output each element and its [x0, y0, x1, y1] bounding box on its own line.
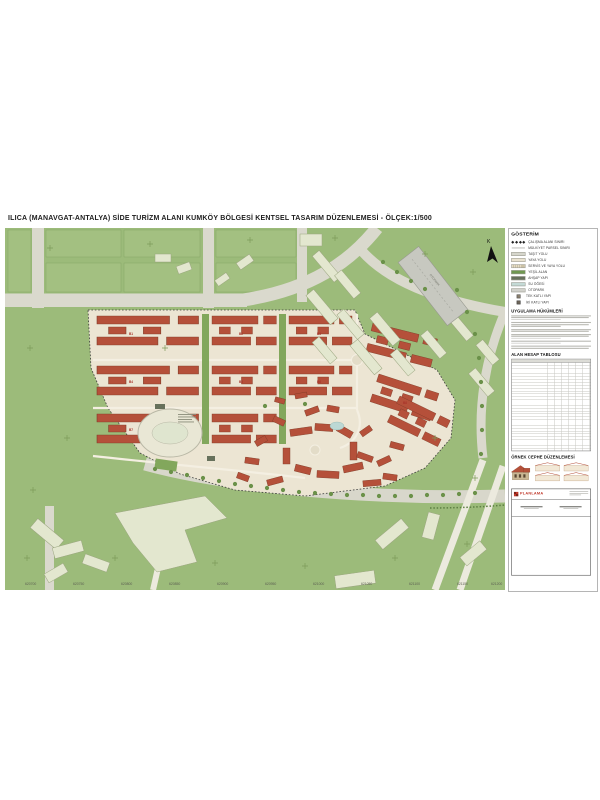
one-story-marker: [517, 294, 521, 298]
wood-swatch: [511, 276, 525, 280]
svg-text:B8: B8: [403, 401, 407, 405]
signatory-left: [512, 499, 551, 516]
green-swatch: [511, 270, 525, 274]
stadium: [138, 409, 202, 457]
svg-text:620700: 620700: [25, 582, 36, 586]
facade-examples: [511, 461, 591, 486]
signatory-row: [512, 499, 591, 516]
svg-text:B6: B6: [317, 380, 321, 384]
firm-name: PLANLAMA: [520, 492, 543, 496]
firm-address-lines: [570, 491, 589, 496]
svg-text:B4: B4: [129, 380, 133, 384]
svg-text:620750: 620750: [73, 582, 84, 586]
svg-text:B2: B2: [239, 332, 243, 336]
service-road-swatch: [511, 264, 525, 268]
provisions-heading: UYGULAMA HÜKÜMLERİ: [511, 309, 591, 314]
svg-text:621100: 621100: [409, 582, 420, 586]
area-calculation-table: [511, 359, 591, 451]
svg-text:B3: B3: [317, 332, 321, 336]
svg-text:621150: 621150: [457, 582, 468, 586]
parking-swatch: [511, 288, 525, 292]
title-block: PLANLAMA: [511, 488, 591, 575]
provisions-text: [511, 315, 591, 348]
firm-logo-icon: [514, 492, 518, 496]
two-story-marker: [517, 301, 521, 305]
svg-text:621200: 621200: [491, 582, 502, 586]
firm-logo-row: PLANLAMA: [512, 489, 591, 499]
village-plaza: [310, 445, 320, 455]
path-swatch: [511, 258, 525, 262]
svg-text:621050: 621050: [361, 582, 372, 586]
boundary-swatch: [511, 240, 525, 244]
facade-drawings: [511, 461, 591, 483]
parcel-line-swatch: [512, 248, 525, 249]
site-plan-map: OTOPARK B1 B2 B3 B4 B5 B6 B7 B8: [5, 228, 505, 590]
svg-text:B1: B1: [129, 332, 133, 336]
svg-text:621000: 621000: [313, 582, 324, 586]
legend-item-two-story: İKİ KATLI YAPI: [511, 299, 591, 305]
svg-text:B5: B5: [239, 380, 243, 384]
svg-text:620950: 620950: [265, 582, 276, 586]
site-plan-svg: OTOPARK B1 B2 B3 B4 B5 B6 B7 B8: [5, 228, 505, 590]
road-swatch: [511, 252, 525, 256]
legend-panel: GÖSTERİM ÇALIŞMA ALANI SINIRI MÜLKİYET P…: [508, 228, 598, 592]
svg-text:620850: 620850: [169, 582, 180, 586]
signatory-right: [551, 499, 590, 516]
area-table-header: [512, 359, 591, 362]
legend-heading: GÖSTERİM: [511, 231, 591, 237]
water-feature: [330, 422, 344, 430]
water-swatch: [511, 282, 525, 286]
page-title: ILICA (MANAVGAT-ANTALYA) SİDE TURİZM ALA…: [8, 215, 548, 222]
svg-text:620900: 620900: [217, 582, 228, 586]
area-table-heading: ALAN HESAP TABLOSU: [511, 352, 591, 357]
svg-text:B7: B7: [129, 428, 133, 432]
facade-heading: ÖRNEK CEPHE DÜZENLEMESİ: [511, 454, 591, 459]
svg-text:620800: 620800: [121, 582, 132, 586]
